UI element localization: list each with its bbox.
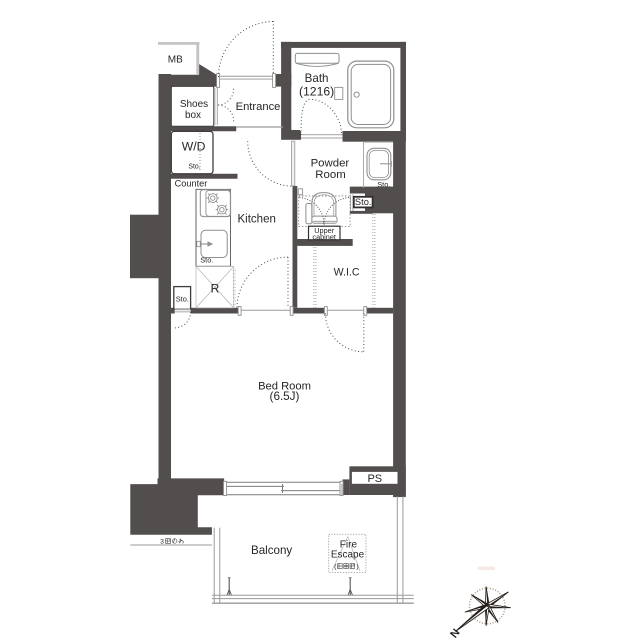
- svg-text:Entrance: Entrance: [236, 101, 281, 113]
- svg-text:R: R: [211, 281, 220, 295]
- svg-text:Powder: Powder: [311, 157, 350, 169]
- svg-text:W/D: W/D: [182, 139, 206, 153]
- svg-text:Sto.: Sto.: [355, 197, 372, 207]
- svg-text:Bath: Bath: [305, 72, 329, 85]
- svg-text:Fire: Fire: [340, 539, 358, 550]
- svg-text:(1216): (1216): [299, 85, 334, 99]
- svg-text:(6.5J): (6.5J): [270, 390, 300, 403]
- svg-text:Sto.: Sto.: [200, 255, 213, 264]
- svg-text:PS: PS: [367, 473, 382, 485]
- svg-text:Room: Room: [315, 169, 345, 181]
- svg-text:Sto.: Sto.: [176, 294, 189, 303]
- svg-text:): ): [356, 563, 358, 570]
- svg-text:W.I.C: W.I.C: [334, 267, 360, 279]
- svg-text:Sto.: Sto.: [188, 163, 200, 170]
- svg-text:cabinet: cabinet: [312, 232, 336, 241]
- svg-text:Kitchen: Kitchen: [238, 214, 276, 226]
- svg-text:3: 3: [160, 538, 164, 545]
- svg-text:Shoes: Shoes: [180, 99, 208, 110]
- svg-text:Counter: Counter: [175, 178, 208, 188]
- svg-text:MB: MB: [168, 54, 183, 65]
- svg-text:box: box: [185, 110, 201, 121]
- svg-text:Escape: Escape: [331, 550, 365, 561]
- svg-text:Sto.: Sto.: [377, 180, 390, 189]
- svg-text:Balcony: Balcony: [251, 544, 292, 557]
